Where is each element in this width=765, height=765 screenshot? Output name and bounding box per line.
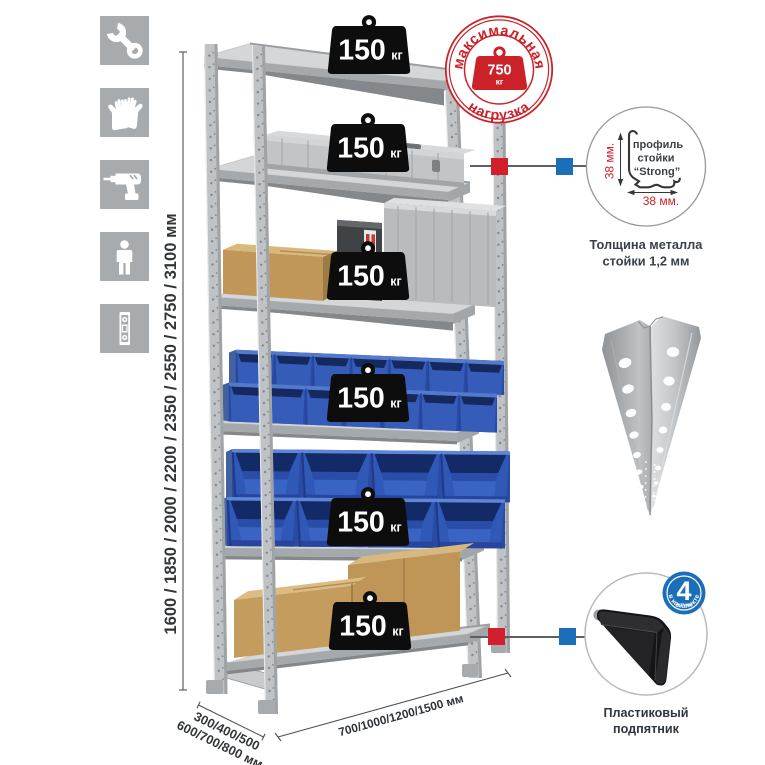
svg-text:150: 150 xyxy=(337,261,385,293)
svg-text:“Strong”: “Strong” xyxy=(634,166,680,178)
svg-text:стойки 1,2 мм: стойки 1,2 мм xyxy=(602,254,689,269)
svg-text:Пластиковый: Пластиковый xyxy=(603,706,688,720)
svg-text:150: 150 xyxy=(339,611,387,643)
svg-text:1600 / 1850 / 2000 / 2200 / 23: 1600 / 1850 / 2000 / 2200 / 2350 / 2550 … xyxy=(161,213,180,634)
svg-text:кг: кг xyxy=(496,77,504,87)
svg-text:150: 150 xyxy=(337,507,385,539)
svg-text:кг: кг xyxy=(390,397,401,411)
svg-text:кг: кг xyxy=(390,521,401,535)
svg-text:кг: кг xyxy=(390,275,401,289)
svg-text:4: 4 xyxy=(676,576,691,606)
svg-text:38 мм.: 38 мм. xyxy=(643,194,680,208)
svg-text:150: 150 xyxy=(338,35,386,67)
svg-text:150: 150 xyxy=(337,383,385,415)
svg-text:Толщина металла: Толщина металла xyxy=(590,237,704,252)
svg-text:подпятник: подпятник xyxy=(613,722,680,736)
svg-text:стойки: стойки xyxy=(637,153,674,165)
svg-text:кг: кг xyxy=(391,49,402,63)
svg-text:кг: кг xyxy=(390,147,401,161)
svg-text:150: 150 xyxy=(337,133,385,165)
svg-text:38 мм.: 38 мм. xyxy=(603,143,617,180)
svg-text:профиль: профиль xyxy=(633,139,683,151)
svg-text:кг: кг xyxy=(392,625,403,639)
